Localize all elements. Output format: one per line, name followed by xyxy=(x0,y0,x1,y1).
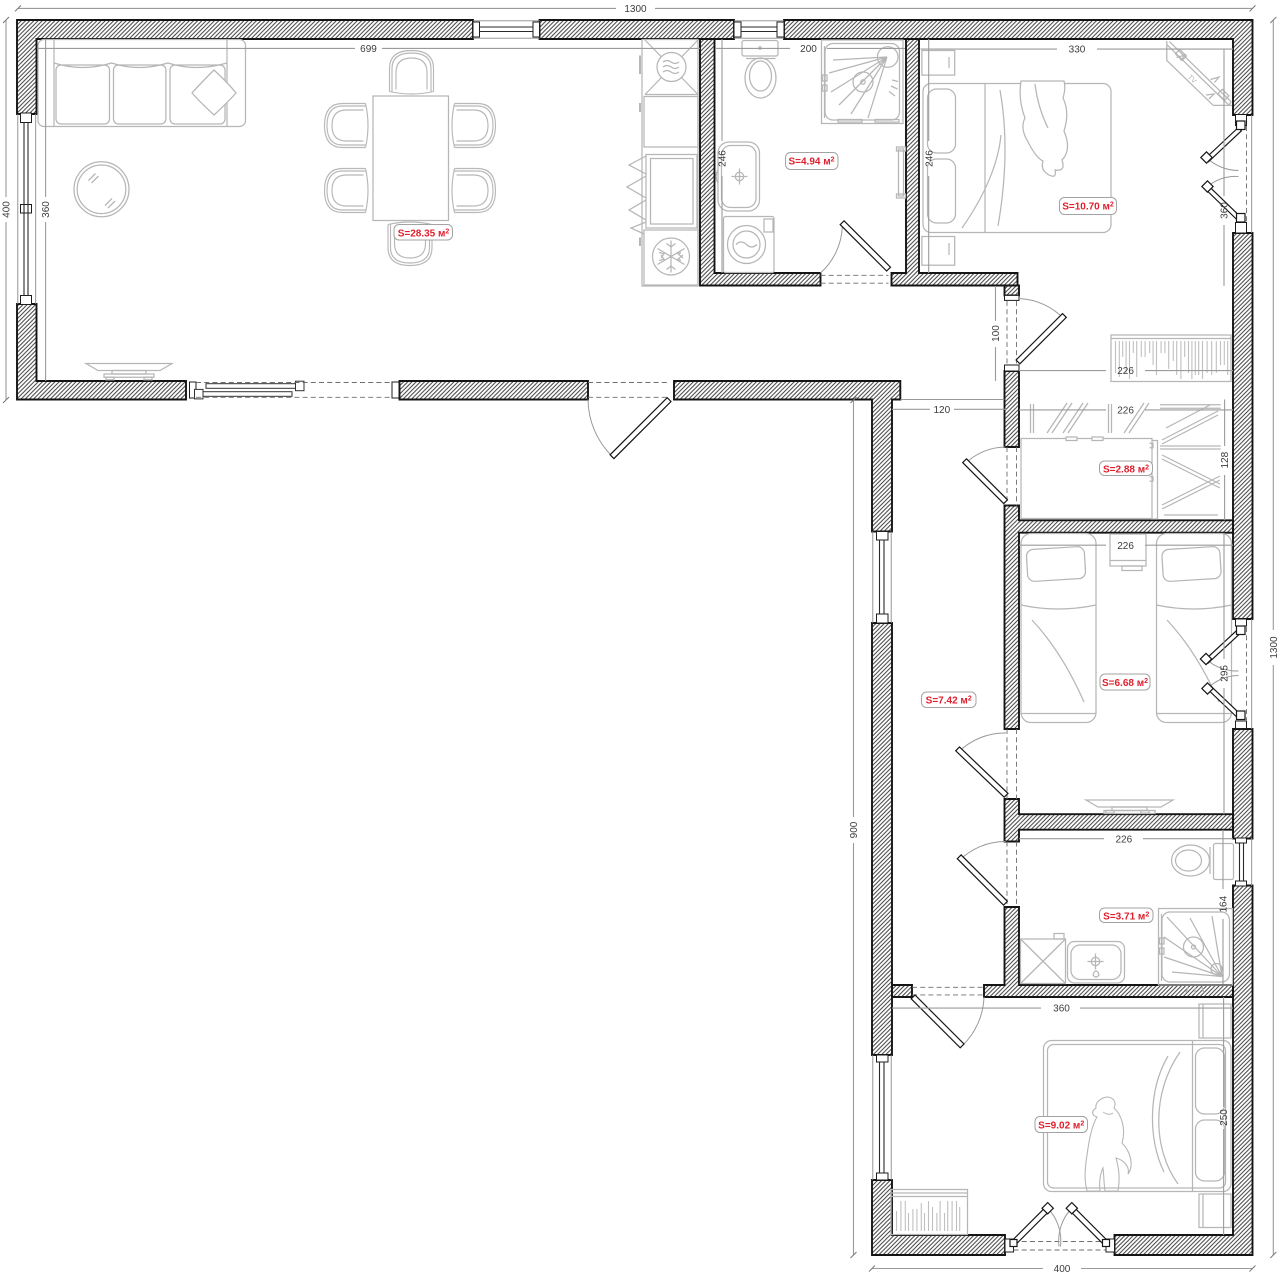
svg-text:1300: 1300 xyxy=(624,4,647,15)
svg-text:226: 226 xyxy=(1117,366,1134,377)
svg-text:246: 246 xyxy=(718,150,729,167)
svg-text:S=10.70 м2: S=10.70 м2 xyxy=(1062,202,1114,213)
svg-text:226: 226 xyxy=(1115,834,1132,845)
svg-text:S=28.35 м2: S=28.35 м2 xyxy=(398,228,450,239)
svg-text:S=7.42 м2: S=7.42 м2 xyxy=(926,696,972,707)
svg-text:100: 100 xyxy=(991,325,1002,342)
svg-text:360: 360 xyxy=(1220,202,1231,219)
svg-text:400: 400 xyxy=(2,201,13,218)
svg-text:699: 699 xyxy=(360,44,377,55)
svg-text:900: 900 xyxy=(849,821,860,838)
svg-text:S=2.88 м2: S=2.88 м2 xyxy=(1103,464,1149,475)
svg-text:S=4.94 м2: S=4.94 м2 xyxy=(788,157,834,168)
svg-text:120: 120 xyxy=(933,405,950,416)
svg-text:S=3.71 м2: S=3.71 м2 xyxy=(1103,911,1149,922)
svg-text:200: 200 xyxy=(800,44,817,55)
svg-text:164: 164 xyxy=(1219,895,1230,912)
svg-text:360: 360 xyxy=(41,201,52,218)
svg-text:S=6.68 м2: S=6.68 м2 xyxy=(1102,678,1148,689)
svg-text:360: 360 xyxy=(1053,1004,1070,1015)
svg-text:226: 226 xyxy=(1117,541,1134,552)
svg-text:295: 295 xyxy=(1220,665,1231,682)
svg-text:246: 246 xyxy=(924,150,935,167)
svg-text:1300: 1300 xyxy=(1269,636,1280,659)
svg-text:226: 226 xyxy=(1117,406,1134,417)
svg-text:128: 128 xyxy=(1220,451,1231,468)
svg-text:S=9.02 м2: S=9.02 м2 xyxy=(1038,1121,1084,1132)
svg-text:400: 400 xyxy=(1054,1264,1071,1275)
svg-text:330: 330 xyxy=(1069,45,1086,56)
svg-text:250: 250 xyxy=(1219,1109,1230,1126)
